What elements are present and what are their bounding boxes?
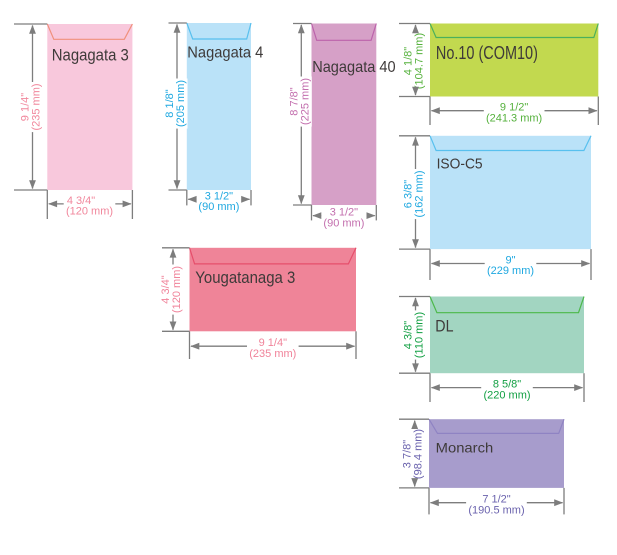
svg-text:DL: DL [435,317,453,336]
svg-text:Nagagata 4: Nagagata 4 [187,45,263,62]
svg-text:(90 mm): (90 mm) [198,201,239,213]
svg-text:Monarch: Monarch [436,440,494,456]
svg-text:No.10 (COM10): No.10 (COM10) [436,43,538,63]
svg-text:ISO-C5: ISO-C5 [437,155,483,172]
svg-text:(120 mm): (120 mm) [66,206,113,218]
svg-text:(235 mm): (235 mm) [31,83,43,130]
svg-text:(225 mm): (225 mm) [299,78,311,125]
svg-text:(98.4 mm): (98.4 mm) [413,429,425,479]
svg-text:(120 mm): (120 mm) [171,266,183,313]
svg-text:Nagagata 3: Nagagata 3 [52,46,129,65]
svg-text:(205 mm): (205 mm) [175,80,187,127]
svg-text:(90 mm): (90 mm) [323,217,364,229]
svg-text:(235 mm): (235 mm) [249,348,296,360]
svg-text:(241.3 mm): (241.3 mm) [486,112,542,124]
svg-text:(104.7 mm): (104.7 mm) [414,33,426,89]
svg-text:(229 mm): (229 mm) [487,265,534,277]
svg-text:Nagagata 40: Nagagata 40 [312,59,395,76]
svg-text:Yougatanaga 3: Yougatanaga 3 [195,268,295,287]
svg-text:(162 mm): (162 mm) [414,170,426,217]
svg-text:(110 mm): (110 mm) [414,312,426,358]
svg-text:(190.5 mm): (190.5 mm) [468,504,524,516]
svg-text:(220 mm): (220 mm) [483,389,530,401]
